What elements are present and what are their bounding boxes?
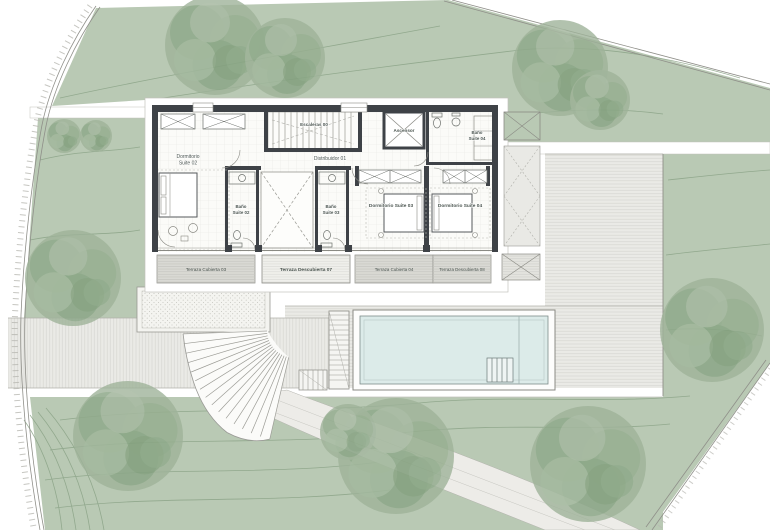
tree-bottom-center-b [320,404,376,460]
lower-left-stair [299,370,327,390]
tree-right-of-pool [660,278,764,382]
terraza-descubierta-07: Terraza Descubierta 07 [262,255,350,283]
tree-top-right-b [570,70,630,130]
void-room [261,172,313,248]
label-ascensor: Ascensor [394,128,415,133]
pergola-strip [504,146,540,246]
label-escaleras: Escaleras 00 [300,122,328,127]
pool-steps [487,358,513,382]
floor-plan-canvas: Dormitorio Suite 02 Escaleras 00 Distrib… [0,0,770,530]
label-dormitorio-suite-02-line1: Dormitorio [176,154,199,160]
label-dormitorio-suite-03: Dormitorio Suite 03 [369,203,414,209]
pool-water [360,316,548,384]
label-bano-suite-02-line1: Baño [236,204,247,209]
label-bano-suite-03-line2: Suite 03 [323,210,340,215]
label-bano-suite-04-line2: Suite 04 [469,136,486,141]
side-skylight-box [502,254,540,280]
stairs-escaleras [268,112,360,150]
pool-area [299,310,555,390]
bush-left-b [80,120,112,152]
label-dormitorio-suite-02-line2: Suite 02 [179,161,198,167]
label-terraza-cubierta-03: Terraza Cubierta 03 [186,267,227,272]
site-plan-svg: Dormitorio Suite 02 Escaleras 00 Distrib… [0,0,770,530]
label-terraza-descubierta-08: Terraza Descubierta 08 [439,267,485,272]
green-planter [504,112,540,140]
label-distribuidor: Distribuidor 01 [314,156,346,162]
tree-mid-left [25,230,121,326]
terraza-descubierta-08: Terraza Descubierta 08 [433,255,491,283]
closet-dorm2-b [203,114,245,129]
label-bano-suite-02-line2: Suite 02 [233,210,250,215]
terraza-cubierta-03: Terraza Cubierta 03 [157,255,255,283]
label-dormitorio-suite-04: Dormitorio Suite 04 [438,203,483,209]
terraza-cubierta-04: Terraza Cubierta 04 [355,255,433,283]
label-bano-suite-04-line1: Baño [472,130,483,135]
pool-side-stair [329,311,349,389]
label-bano-suite-03-line1: Baño [326,204,337,209]
label-terraza-descubierta-07: Terraza Descubierta 07 [280,267,333,273]
tree-bottom-left [73,381,183,491]
right-terrace-hatch [545,154,663,388]
tree-bottom-right [530,406,646,522]
label-terraza-cubierta-04: Terraza Cubierta 04 [375,267,414,272]
tree-top-big-b [245,18,325,98]
closet-dorm3 [359,170,421,183]
closet-dorm2-a [161,114,195,129]
gravel-patio [137,287,270,332]
bush-left-a [47,119,81,153]
